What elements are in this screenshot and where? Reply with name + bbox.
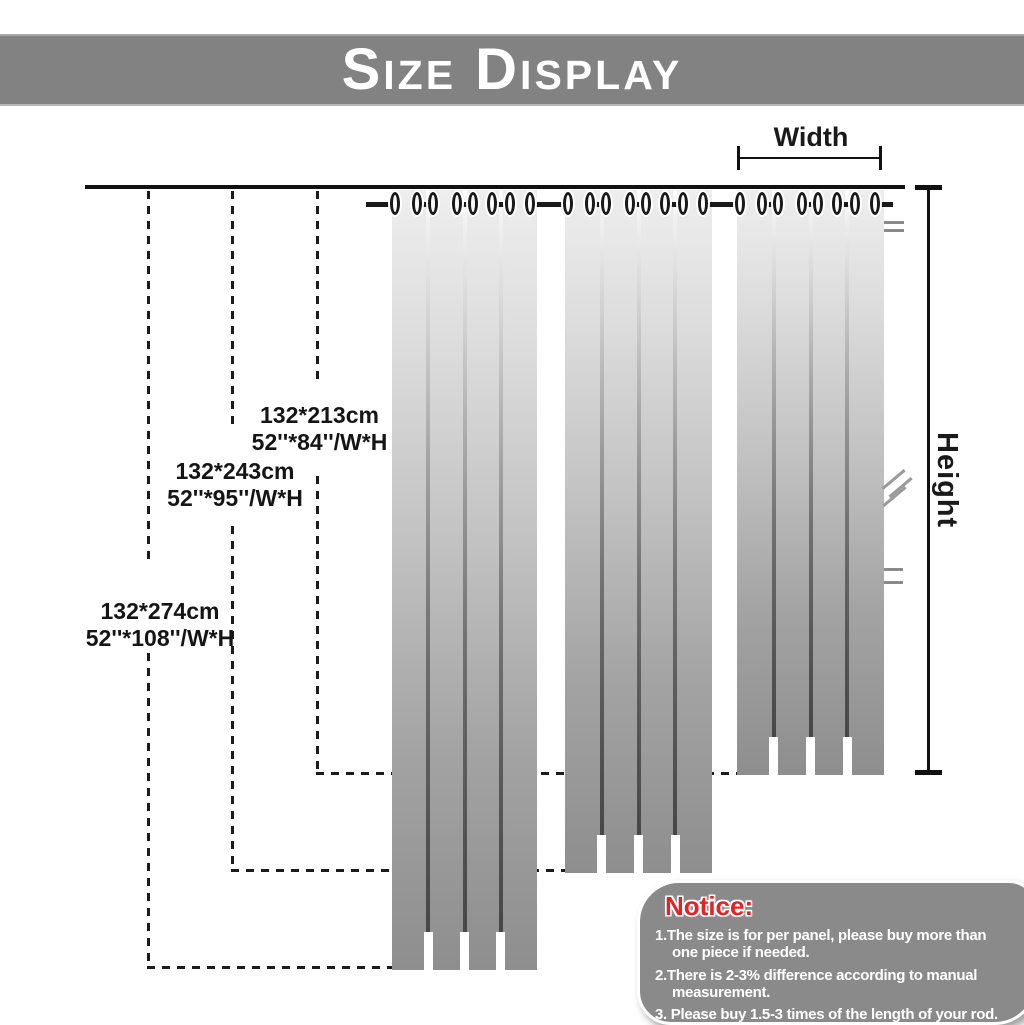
height-measure-cap-bottom — [915, 770, 942, 775]
fold-mark-top-line2 — [884, 229, 904, 232]
height-label: Height — [930, 432, 963, 528]
grommet-ring-icon — [813, 192, 823, 215]
notice-title: Notice: — [665, 891, 1021, 922]
fold-mark-bottom-line2 — [884, 581, 903, 584]
curtain-fold-separator — [809, 190, 813, 737]
grommet-ring-icon — [505, 192, 515, 215]
grommet-ring-icon — [390, 192, 400, 215]
height-measure-cap-top — [915, 185, 942, 190]
curtain-bottom-slit — [671, 835, 680, 873]
grommet-ring-icon — [870, 192, 880, 215]
grommet-ring-icon — [757, 192, 767, 215]
curtain-bottom-slit — [460, 932, 469, 970]
size-label-243-inches: 52''*95''/W*H — [156, 485, 314, 512]
size-label-213: 132*213cm 52''*84''/W*H — [242, 402, 397, 456]
size-label-243-cm: 132*243cm — [156, 458, 314, 485]
curtain-fold-separator — [845, 190, 849, 737]
curtain-bottom-slit — [424, 932, 433, 970]
size-label-243: 132*243cm 52''*95''/W*H — [156, 458, 314, 512]
dashed-guide-213-vertical-upper — [316, 191, 319, 381]
grommet-ring-icon — [487, 192, 497, 215]
curtain-fold-separator — [637, 190, 641, 835]
curtain-fold-separator — [673, 190, 677, 835]
title-banner: Size Display — [0, 34, 1024, 106]
notice-item-2: 2.There is 2-3% difference according to … — [655, 967, 1021, 1002]
size-label-274-inches: 52''*108''/W*H — [76, 625, 244, 652]
fold-mark-bottom-line1 — [884, 568, 903, 571]
curtain-bottom-slit — [769, 737, 778, 775]
grommet-ring-icon — [468, 192, 478, 215]
curtain-rod — [85, 185, 905, 189]
curtain-panel-213cm — [737, 190, 884, 775]
size-label-274: 132*274cm 52''*108''/W*H — [76, 598, 244, 652]
grommet-ring-icon — [563, 192, 573, 215]
width-measure-tick-right — [879, 146, 882, 170]
grommet-ring-icon — [601, 192, 611, 215]
grommet-ring-icon — [850, 192, 860, 215]
page-title: Size Display — [342, 41, 683, 99]
curtain-panel-274cm — [392, 190, 537, 970]
size-label-274-cm: 132*274cm — [76, 598, 244, 625]
curtain-bottom-slit — [496, 932, 505, 970]
size-label-213-inches: 52''*84''/W*H — [242, 429, 397, 456]
grommet-ring-icon — [452, 192, 462, 215]
grommet-ring-icon — [735, 192, 745, 215]
curtain-bottom-slit — [634, 835, 643, 873]
grommet-ring-icon — [428, 192, 438, 215]
notice-item-1: 1.The size is for per panel, please buy … — [655, 927, 1021, 962]
width-label: Width — [737, 122, 885, 153]
grommet-ring-icon — [832, 192, 842, 215]
width-measure-line — [738, 157, 881, 159]
dashed-guide-243-vertical-upper — [231, 191, 234, 429]
grommet-ring-icon — [412, 192, 422, 215]
curtain-fold-separator — [772, 190, 776, 737]
grommet-ring-icon — [698, 192, 708, 215]
width-measure-tick-left — [737, 146, 740, 170]
notice-item-3: 3. Please buy 1.5-3 times of the length … — [655, 1006, 1021, 1023]
grommet-ring-icon — [797, 192, 807, 215]
size-label-213-cm: 132*213cm — [242, 402, 397, 429]
dashed-guide-213-vertical-lower — [316, 476, 319, 774]
curtain-panel-243cm — [565, 190, 712, 873]
curtain-bottom-slit — [843, 737, 852, 775]
grommet-ring-icon — [641, 192, 651, 215]
curtain-fold-separator — [463, 190, 467, 932]
grommet-ring-icon — [773, 192, 783, 215]
grommet-ring-icon — [625, 192, 635, 215]
grommet-ring-icon — [525, 192, 535, 215]
curtain-bottom-slit — [597, 835, 606, 873]
dashed-guide-274-vertical-lower — [147, 653, 150, 968]
curtain-fold-separator — [426, 190, 430, 932]
curtain-fold-separator — [499, 190, 503, 932]
dashed-guide-243-vertical-lower — [231, 526, 234, 871]
grommet-ring-icon — [678, 192, 688, 215]
notice-box: Notice: 1.The size is for per panel, ple… — [637, 880, 1024, 1025]
grommet-ring-icon — [585, 192, 595, 215]
curtain-fold-separator — [600, 190, 604, 835]
dashed-guide-274-vertical-upper — [147, 191, 150, 564]
grommet-ring-icon — [660, 192, 670, 215]
curtain-bottom-slit — [806, 737, 815, 775]
fold-mark-top-line1 — [884, 221, 904, 224]
